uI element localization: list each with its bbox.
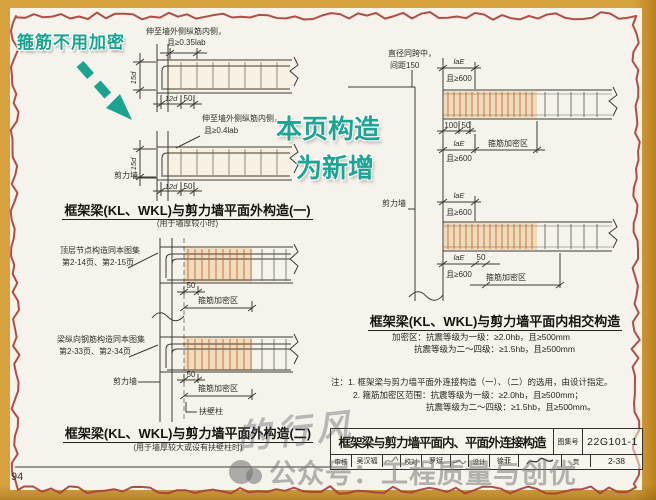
- detail3-title: 框架梁(KL、WKL)与剪力墙平面内相交构造: [352, 311, 638, 330]
- sheet-page-number: 2-38: [591, 455, 642, 467]
- dim-lae: laE: [454, 191, 466, 200]
- atlas-number-label: 图集号: [554, 429, 583, 454]
- spacing-note-2: 间距150: [390, 61, 420, 70]
- shear-wall-label: 剪力墙: [113, 376, 137, 386]
- drawing-out-of-plane-2: 顶层节点构造同本图集 第2-14页、第2-15页 梁纵向钢筋构造同本图集 第2-…: [57, 238, 298, 422]
- anchor-label-1: 伸至墙外侧纵筋内侧，: [146, 26, 226, 36]
- dense-zone-label: 箍筋加密区: [488, 138, 528, 148]
- dim-12d: 12d: [165, 182, 178, 191]
- dim-50: 50: [184, 182, 193, 191]
- detail3-spec1: 加密区：抗震等级为一级：≥2.0hb，且≥500mm: [392, 331, 570, 343]
- shear-wall-label: 剪力墙: [114, 170, 138, 180]
- spacing-note-1: 直径同跨中，: [388, 48, 436, 58]
- dim-100: 100: [444, 121, 458, 130]
- dim-lae: laE: [454, 253, 466, 262]
- dim-50: 50: [187, 281, 196, 290]
- dim-50: 50: [187, 370, 196, 379]
- page-number: 94: [11, 471, 23, 483]
- anchor-label-2: 伸至墙外侧纵筋内侧，: [202, 113, 282, 123]
- dense-zone-label: 箍筋加密区: [198, 383, 238, 393]
- dim-12d: 12d: [165, 94, 178, 103]
- label-bracket: [348, 70, 415, 87]
- detail3-spec2: 抗震等级为二～四级：≥1.5hb，且≥500mm: [414, 343, 575, 355]
- dense-zone-label: 箍筋加密区: [198, 295, 238, 305]
- ref-note-top-2: 第2-14页、第2-15页: [62, 257, 134, 267]
- scanned-atlas-page: 伸至墙外侧纵筋内侧， 且≥0.35lab 伸至墙外侧纵筋内侧， 且≥0.4lab…: [0, 0, 656, 500]
- watermark-text: 公众号：工程质量与创优: [269, 452, 577, 491]
- drawing-in-plane: 直径同跨中， 间距150 laE 且≥600 100 50 laE 且≥600 …: [348, 48, 617, 301]
- shear-wall-label: 剪力墙: [382, 198, 406, 208]
- dense-zone-label: 箍筋加密区: [486, 272, 526, 282]
- annotation-stirrups-callout: 箍筋不用加密: [17, 28, 125, 53]
- dim-50: 50: [462, 121, 471, 130]
- dim-lae: laE: [454, 57, 466, 66]
- annotation-new-on-this-page: 本页构造 为新增: [276, 110, 380, 188]
- note-line3: 抗震等级为二～四级：≥1.5hb，且≥500mm。: [426, 401, 595, 413]
- dim-15d: 15d: [129, 157, 138, 170]
- pilaster-label: 扶壁柱: [199, 406, 223, 416]
- stirrups: [262, 249, 286, 370]
- wall-lines: [415, 58, 443, 301]
- official-account-watermark: 公众号：工程质量与创优: [226, 452, 577, 491]
- note-line2: 2. 箍筋加密区范围：抗震等级为一级：≥2.0hb，且≥500mm；: [353, 389, 583, 401]
- detail1-subtitle: (用于墙厚较小时): [50, 218, 325, 229]
- dim-ge600: 且≥600: [446, 208, 472, 217]
- arrow-head-icon: [106, 94, 132, 120]
- note-line1: 注：1. 框架梁与剪力墙平面外连接构造（一）、（二）的选用，由设计指定。: [331, 376, 612, 388]
- anchor-label-1b: 且≥0.35lab: [167, 38, 206, 47]
- teal-arrow: [68, 56, 148, 136]
- watermark-logo-icon: [226, 454, 264, 490]
- dim-ge600: 且≥600: [446, 154, 472, 163]
- anchor-label-2b: 且≥0.4lab: [204, 126, 239, 135]
- atlas-number: 22G101-1: [583, 429, 642, 454]
- new-note-line1: 本页构造: [276, 110, 380, 149]
- new-note-line2: 为新增: [276, 149, 380, 188]
- stirrups: [545, 92, 597, 249]
- dim-50: 50: [477, 253, 486, 262]
- dim-ge600: 且≥600: [446, 74, 472, 83]
- sheet-title: 框架梁与剪力墙平面内、平面外连接构造: [331, 429, 554, 454]
- dim-lae: laE: [454, 139, 466, 148]
- dim-ge600: 且≥600: [446, 270, 472, 279]
- ref-note-mid-2: 第2-33页、第2-34页: [59, 346, 131, 356]
- ref-note-mid-1: 梁纵向钢筋构造同本图集: [57, 334, 145, 344]
- dim-50: 50: [184, 94, 193, 103]
- ref-note-top-1: 顶层节点构造同本图集: [60, 245, 140, 255]
- detail1-title: 框架梁(KL、WKL)与剪力墙平面外构造(一): [50, 200, 325, 219]
